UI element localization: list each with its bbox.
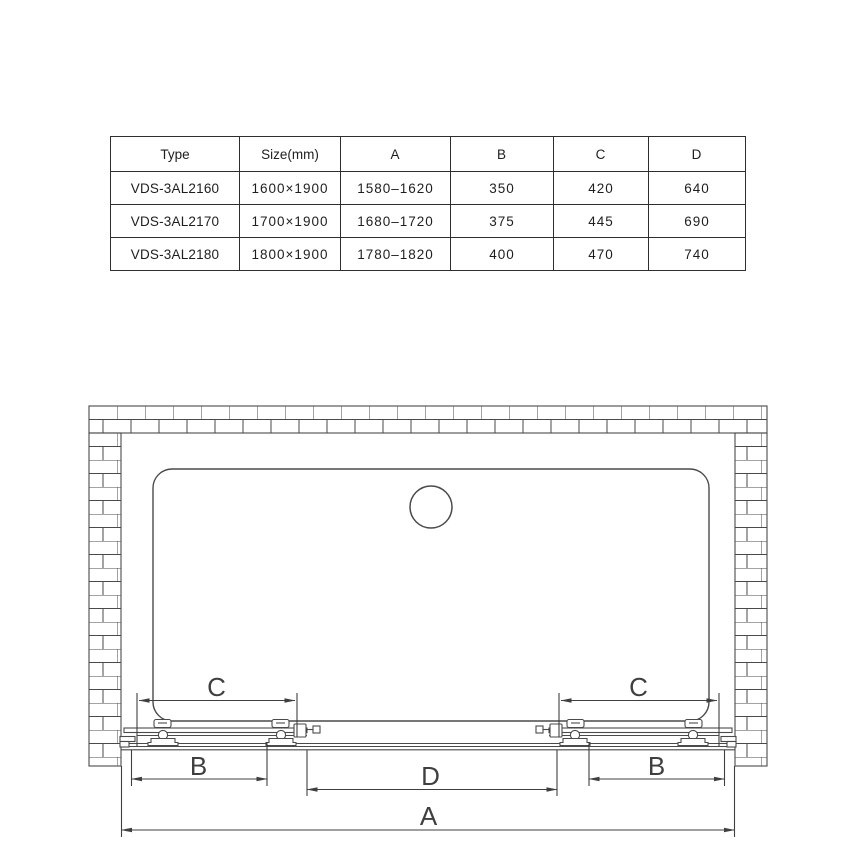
- label-b-left: B: [190, 751, 208, 781]
- door-panel-right: [536, 720, 736, 748]
- door-panel-left: [120, 720, 320, 748]
- label-c-right: C: [629, 672, 649, 702]
- installation-diagram: C C B B D A: [0, 0, 866, 866]
- label-b-right: B: [648, 751, 666, 781]
- wall-right: [735, 433, 767, 766]
- wall-bracket: [120, 737, 135, 748]
- wall-top: [89, 406, 767, 433]
- drain-circle: [410, 486, 452, 528]
- wall-left: [89, 433, 121, 766]
- label-a: A: [420, 801, 438, 831]
- label-d: D: [421, 761, 441, 791]
- bottom-track: [121, 744, 735, 750]
- label-c-left: C: [207, 672, 227, 702]
- shower-door-spec-sheet: Type Size(mm) A B C D VDS-3AL2160 1600×1…: [0, 0, 866, 866]
